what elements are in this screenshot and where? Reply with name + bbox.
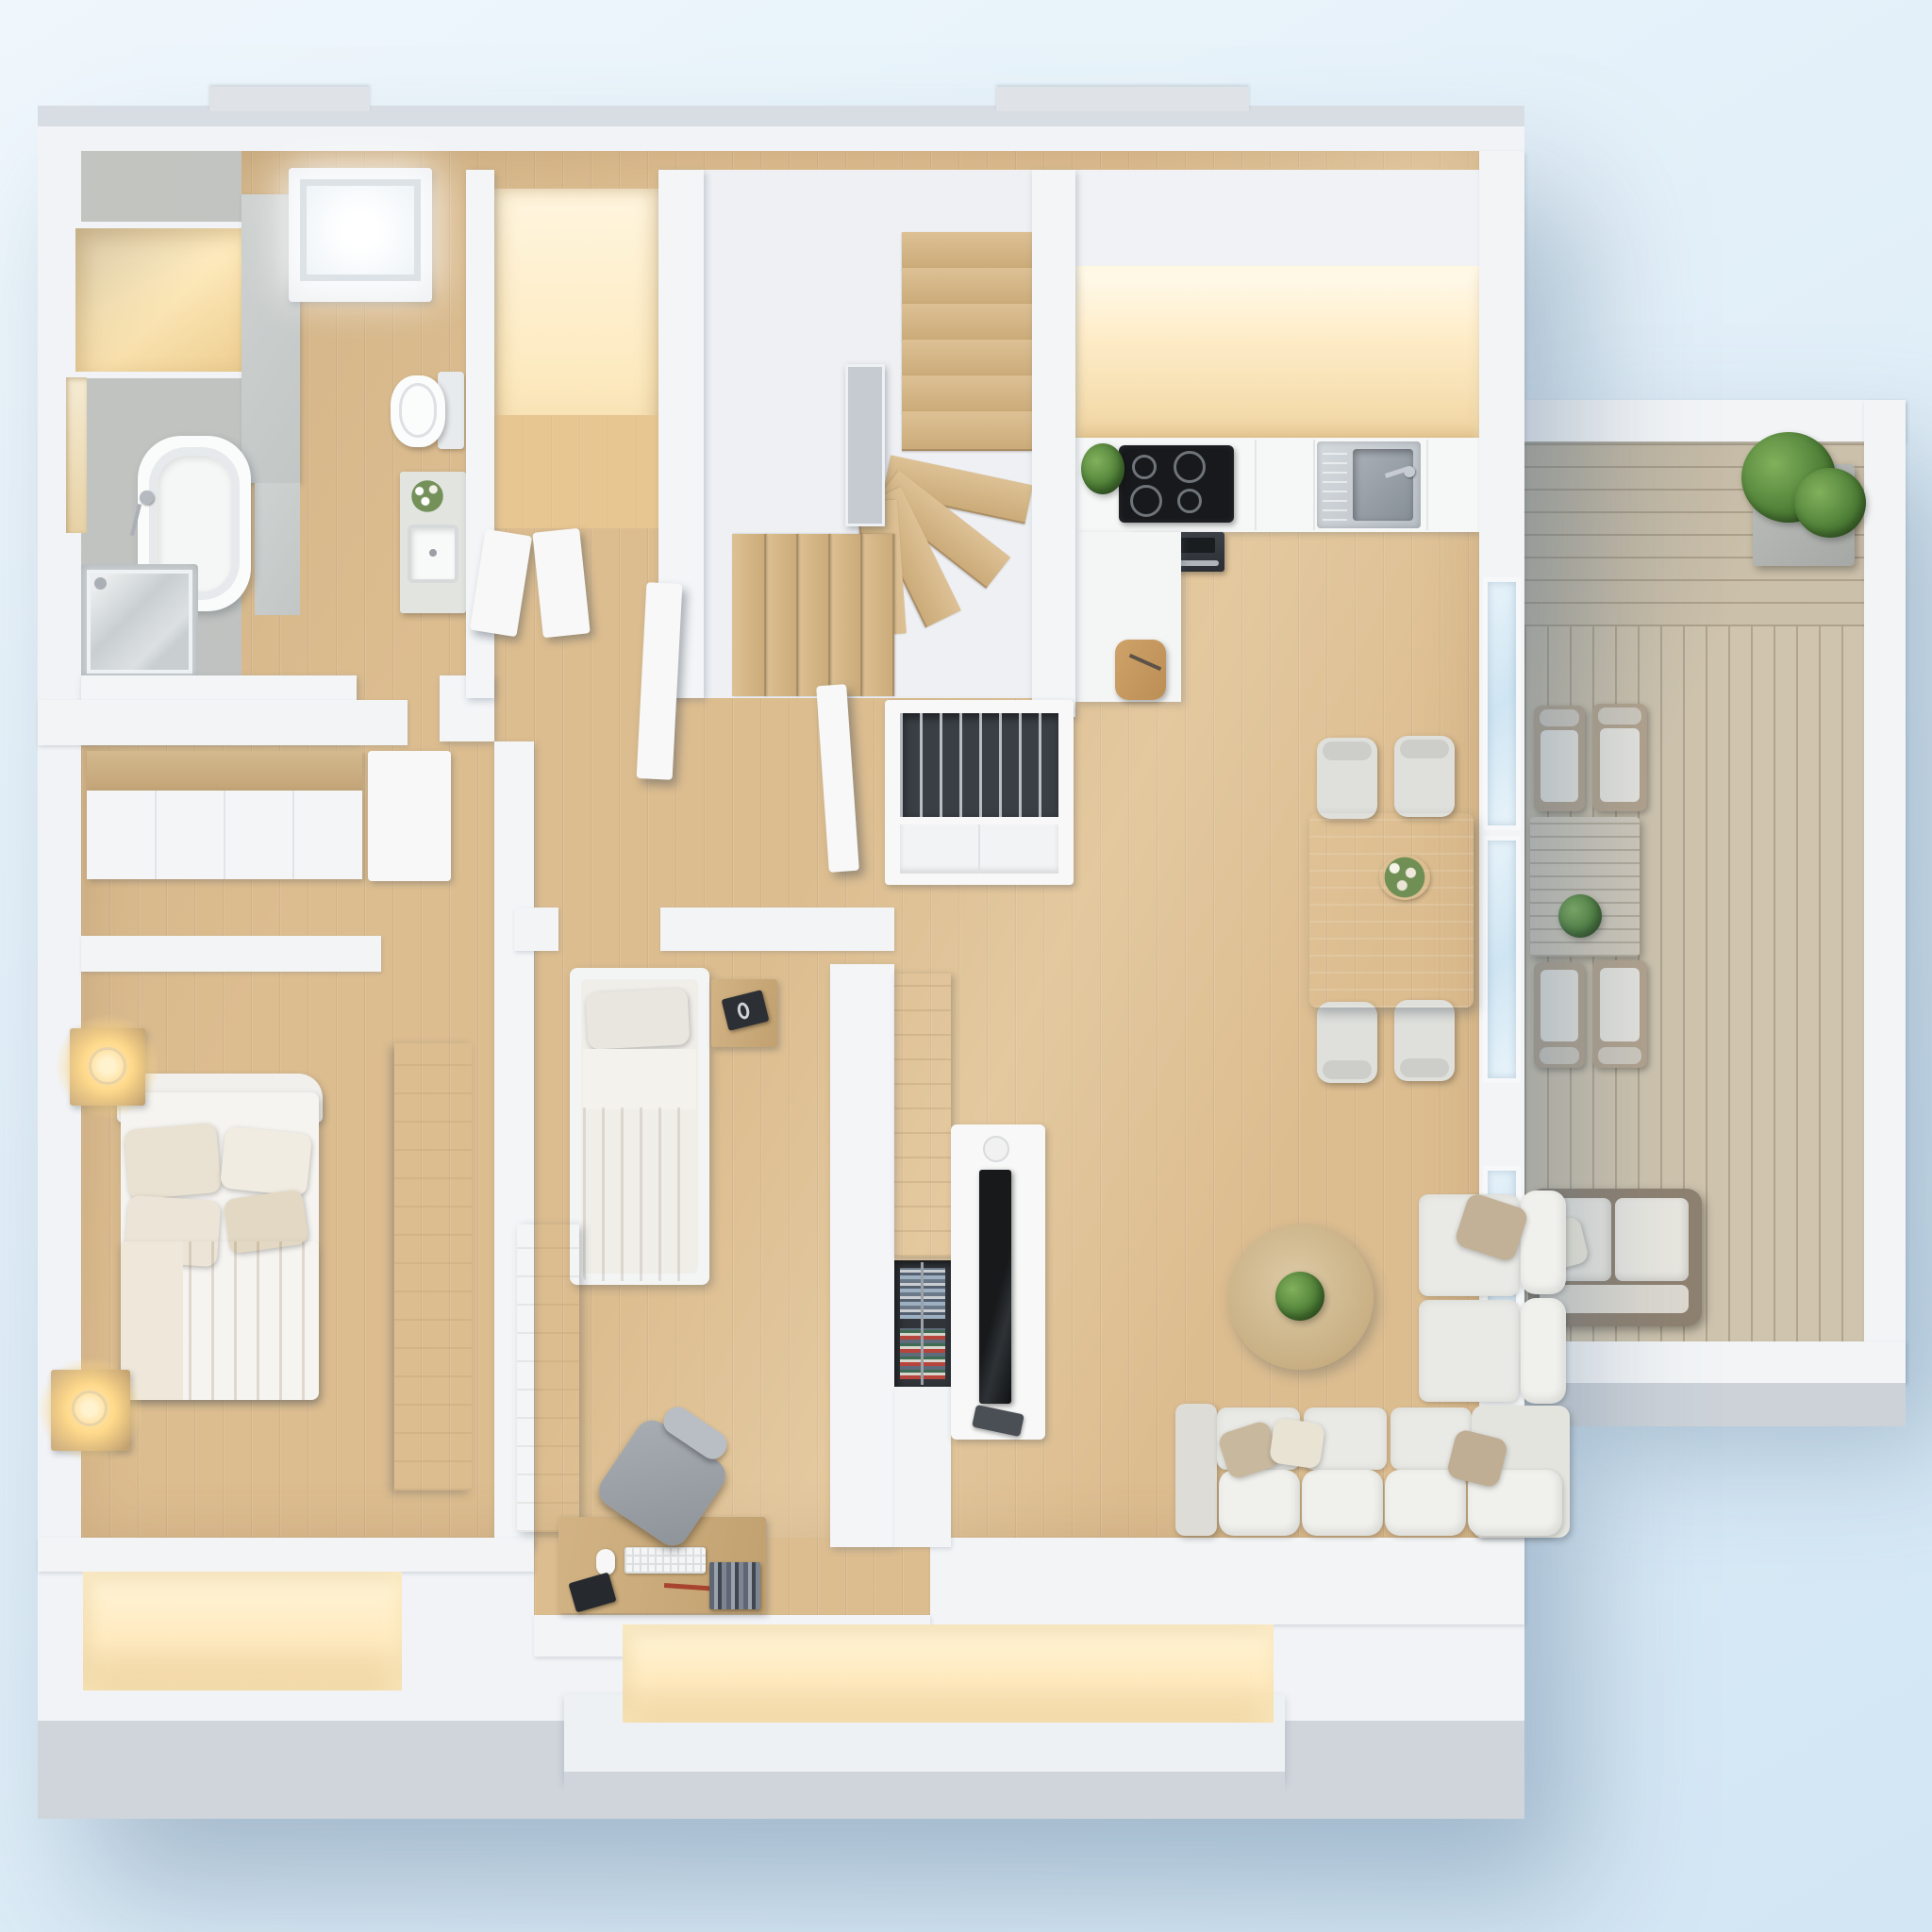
kids-wardrobe [517, 1224, 579, 1532]
single-bed-frame [570, 968, 709, 1285]
book-cover-mark [736, 1001, 751, 1020]
mouse-icon [596, 1549, 615, 1575]
nightstand [711, 979, 777, 1047]
book-icon [722, 990, 770, 1031]
notebook-icon [568, 1573, 616, 1613]
bed-blanket [583, 1108, 696, 1281]
kids-room-group [0, 0, 1932, 1932]
bed-sheet [583, 1049, 696, 1109]
desk-books [709, 1562, 760, 1609]
keyboard-icon [625, 1547, 706, 1574]
bed-pillow [586, 988, 691, 1050]
floorplan-render [0, 0, 1932, 1932]
